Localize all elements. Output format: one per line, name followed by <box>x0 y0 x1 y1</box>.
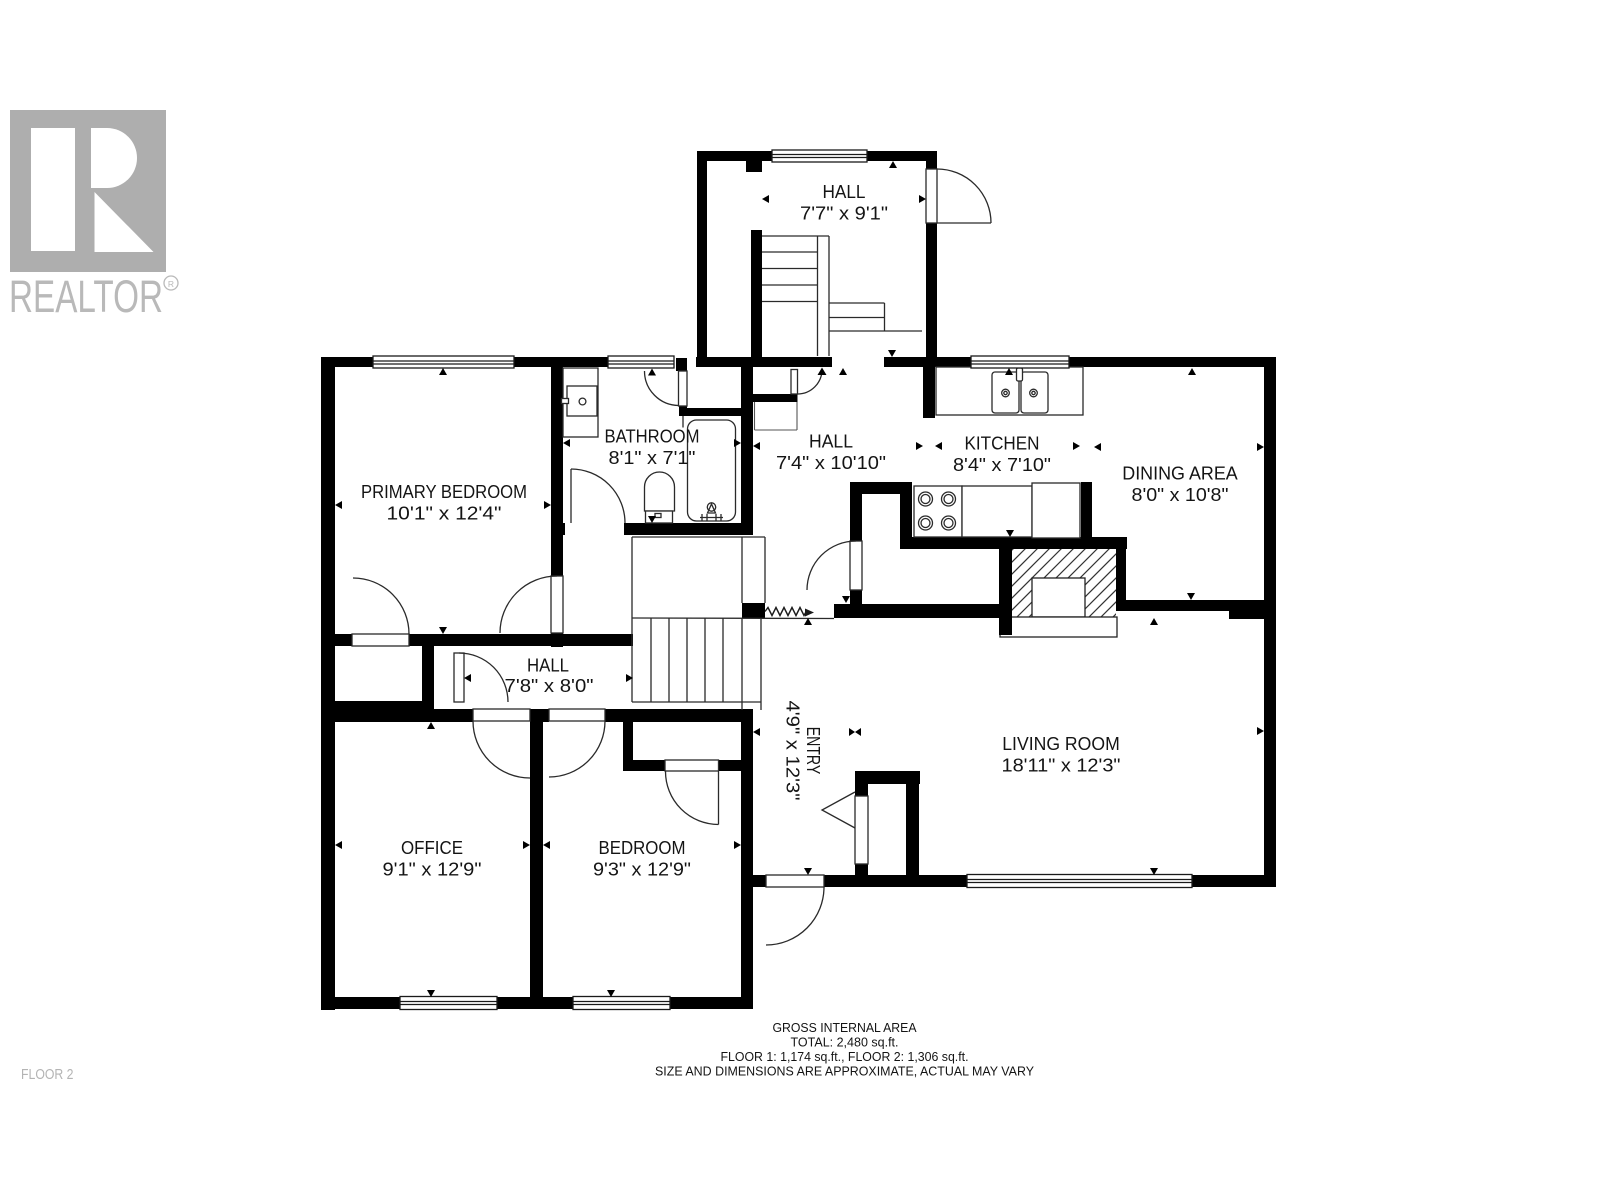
svg-text:TOTAL: 2,480 sq.ft.: TOTAL: 2,480 sq.ft. <box>791 1035 899 1050</box>
svg-text:SIZE AND DIMENSIONS ARE APPROX: SIZE AND DIMENSIONS ARE APPROXIMATE, ACT… <box>655 1063 1034 1078</box>
svg-text:KITCHEN: KITCHEN <box>965 434 1040 454</box>
svg-text:HALL: HALL <box>823 182 866 202</box>
svg-text:8'1" x 7'1": 8'1" x 7'1" <box>609 448 696 468</box>
svg-text:HALL: HALL <box>527 656 569 676</box>
svg-text:7'8" x 8'0": 7'8" x 8'0" <box>505 676 594 696</box>
svg-text:9'1" x 12'9": 9'1" x 12'9" <box>383 860 482 880</box>
svg-text:FLOOR 2: FLOOR 2 <box>21 1066 74 1083</box>
svg-text:PRIMARY BEDROOM: PRIMARY BEDROOM <box>361 482 527 502</box>
svg-text:4'9" x 12'3": 4'9" x 12'3" <box>783 701 803 801</box>
svg-text:R: R <box>168 279 174 289</box>
svg-text:BATHROOM: BATHROOM <box>605 427 700 447</box>
svg-text:ENTRY: ENTRY <box>803 727 823 775</box>
svg-text:18'11" x 12'3": 18'11" x 12'3" <box>1002 756 1121 776</box>
svg-text:FLOOR 1: 1,174 sq.ft., FLOOR 2: FLOOR 1: 1,174 sq.ft., FLOOR 2: 1,306 sq… <box>721 1049 969 1064</box>
svg-text:OFFICE: OFFICE <box>401 838 463 858</box>
svg-text:BEDROOM: BEDROOM <box>599 838 686 858</box>
svg-text:REALTOR: REALTOR <box>9 271 163 322</box>
svg-text:DINING AREA: DINING AREA <box>1122 464 1238 484</box>
svg-text:HALL: HALL <box>809 432 853 452</box>
svg-text:8'4" x 7'10": 8'4" x 7'10" <box>953 455 1051 475</box>
svg-text:7'4" x 10'10": 7'4" x 10'10" <box>776 453 886 473</box>
svg-text:9'3" x 12'9": 9'3" x 12'9" <box>593 860 691 880</box>
svg-text:8'0" x 10'8": 8'0" x 10'8" <box>1132 485 1229 505</box>
svg-text:10'1" x 12'4": 10'1" x 12'4" <box>387 504 502 524</box>
svg-text:7'7" x 9'1": 7'7" x 9'1" <box>800 204 888 224</box>
svg-text:LIVING ROOM: LIVING ROOM <box>1002 734 1120 754</box>
svg-text:GROSS INTERNAL AREA: GROSS INTERNAL AREA <box>773 1020 917 1035</box>
